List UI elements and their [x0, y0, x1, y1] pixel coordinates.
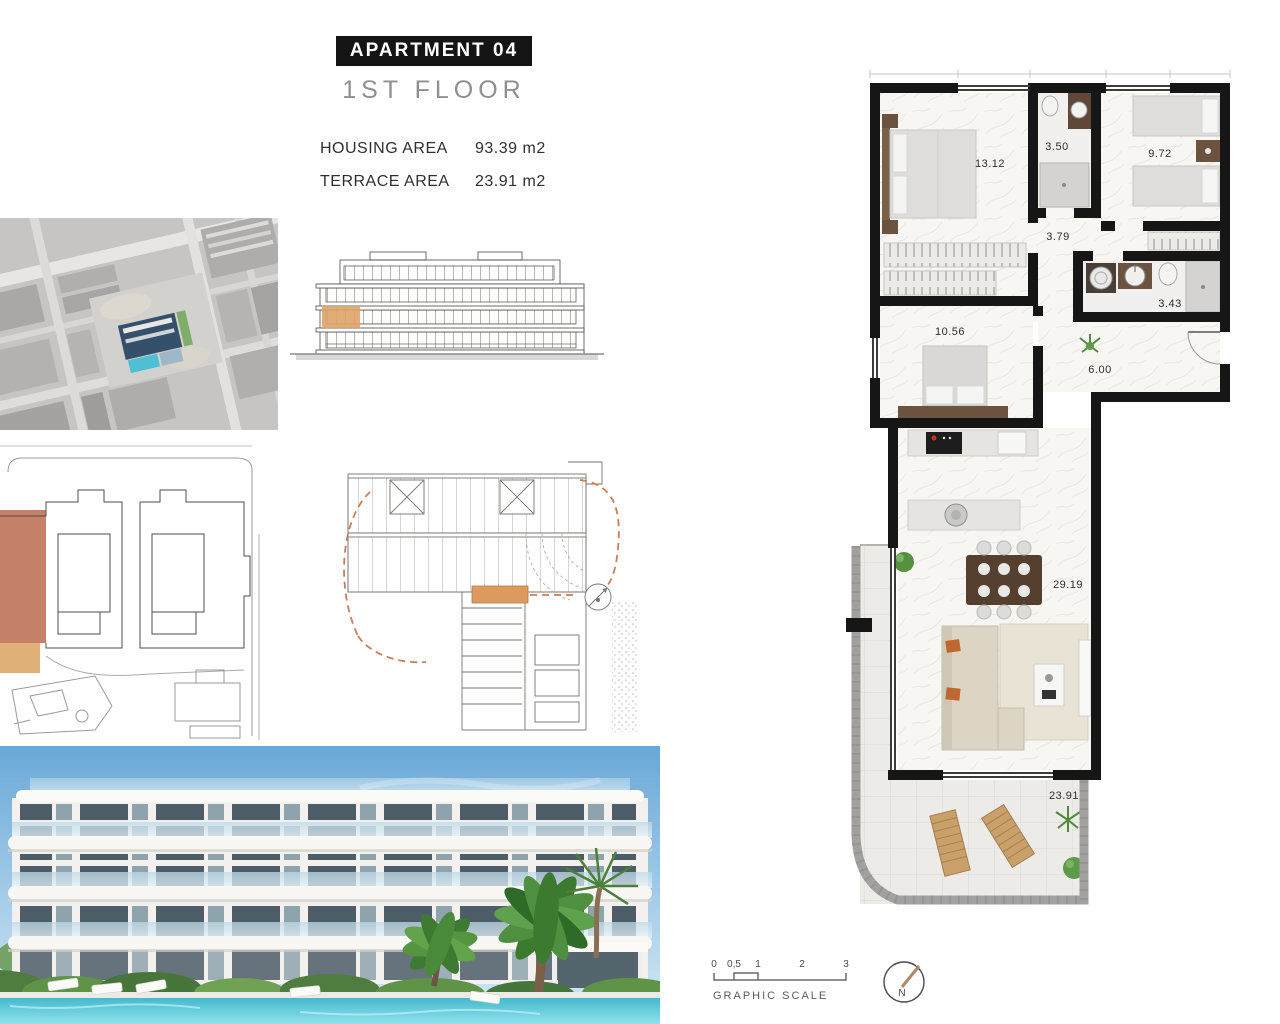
room-area-label-bathroom-2: 3.43: [1158, 298, 1181, 310]
room-area-label-terrace: 23.91: [1049, 790, 1079, 802]
scale-tick-3: 3: [843, 959, 849, 970]
scale-bar: [714, 973, 846, 980]
site-plan-pool-area: [12, 676, 112, 734]
area-table: HOUSING AREA 93.39 m2 TERRACE AREA 23.91…: [320, 140, 590, 206]
scale-tick-05: 0,5: [727, 959, 741, 970]
key-plan-upper-wing: [348, 462, 602, 592]
main-floor-plan: 13.12 3.50 9.72 3.79 3.43 10.56 6.00 29.…: [838, 68, 1238, 938]
room-area-label-living-dining: 29.19: [1053, 579, 1083, 591]
floor-key-plan-drawing: [330, 440, 642, 742]
apartment-title: APARTMENT 04: [350, 40, 518, 62]
compass-north-label: N: [898, 988, 905, 999]
graphic-scale: 0 0,5 1 2 3 GRAPHIC SCALE: [705, 955, 875, 1007]
room-area-label-bathroom-1: 3.50: [1045, 141, 1068, 153]
site-plan-highlight-block: [0, 510, 46, 643]
room-area-label-bedroom-1: 13.12: [975, 158, 1005, 170]
housing-area-value: 93.39 m2: [475, 140, 546, 158]
site-plan-highlight-terrace: [0, 643, 40, 673]
floor-subtitle: 1ST FLOOR: [336, 76, 532, 105]
scale-caption: GRAPHIC SCALE: [713, 990, 828, 1002]
room-area-label-bedroom-3: 10.56: [935, 326, 965, 338]
site-plan-annex: [175, 670, 240, 738]
key-plan-lower-wing: [462, 592, 586, 730]
building-exterior-render: [0, 746, 660, 1024]
scale-tick-2: 2: [799, 959, 805, 970]
key-plan-highlight-unit: [472, 586, 528, 603]
terrace-area-row: TERRACE AREA 23.91 m2: [320, 173, 590, 191]
scale-tick-0: 0: [711, 959, 717, 970]
room-area-label-bedroom-2: 9.72: [1148, 148, 1171, 160]
aerial-site-photo: [0, 218, 278, 430]
building-elevation-drawing: [282, 242, 612, 374]
site-plan-building-2: [140, 490, 250, 648]
room-area-label-hallway: 3.79: [1046, 231, 1069, 243]
site-plan-drawing: [0, 438, 262, 740]
title-box: APARTMENT 04: [336, 36, 532, 66]
elevation-highlight-unit: [322, 306, 360, 328]
north-compass: N: [878, 955, 932, 1009]
plan-dimension-line: [870, 70, 1230, 78]
key-plan-stair-symbol: [585, 584, 611, 610]
room-area-label-entrance-hall: 6.00: [1088, 364, 1111, 376]
scale-tick-1: 1: [755, 959, 761, 970]
living-furniture: [942, 624, 1091, 750]
housing-area-row: HOUSING AREA 93.39 m2: [320, 140, 590, 158]
render-pool: [0, 992, 660, 1024]
terrace-area-value: 23.91 m2: [475, 173, 546, 191]
housing-area-label: HOUSING AREA: [320, 140, 475, 158]
terrace-area-label: TERRACE AREA: [320, 173, 475, 191]
